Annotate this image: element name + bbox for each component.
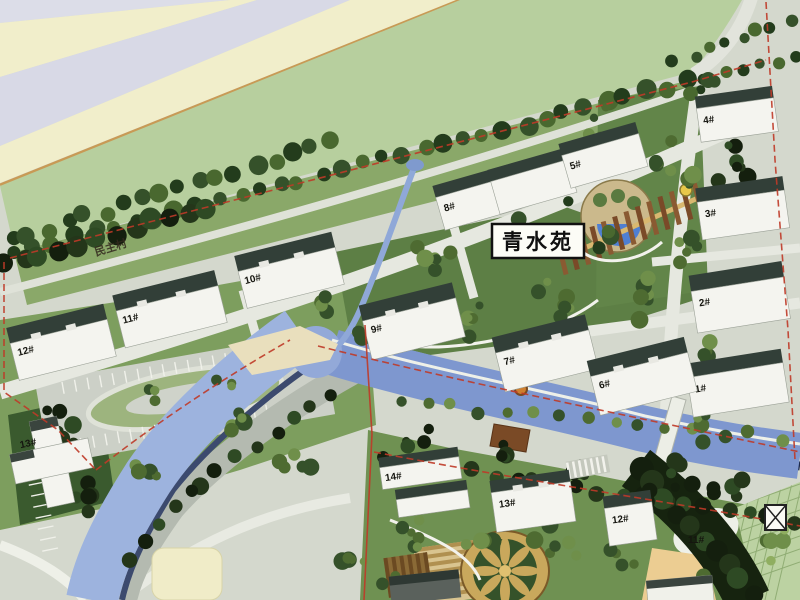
- building-label: 2#: [698, 297, 711, 310]
- site-plan-image: 12# 11# 10# 8# 5# 4# 3#: [0, 0, 800, 600]
- site-plan-canvas: 12# 11# 10# 8# 5# 4# 3#: [0, 0, 800, 600]
- building-label: 4#: [702, 114, 715, 127]
- building-13-south: 13#: [489, 470, 575, 533]
- building-label: 11#: [688, 535, 705, 546]
- boxed-x-marker: [765, 505, 786, 530]
- project-name-plate: 青水苑: [492, 224, 584, 258]
- building-12-south: 12#: [603, 490, 657, 546]
- building-label: 3#: [704, 208, 717, 221]
- project-name-label: 青水苑: [502, 231, 574, 254]
- cream-parcel: [152, 548, 222, 600]
